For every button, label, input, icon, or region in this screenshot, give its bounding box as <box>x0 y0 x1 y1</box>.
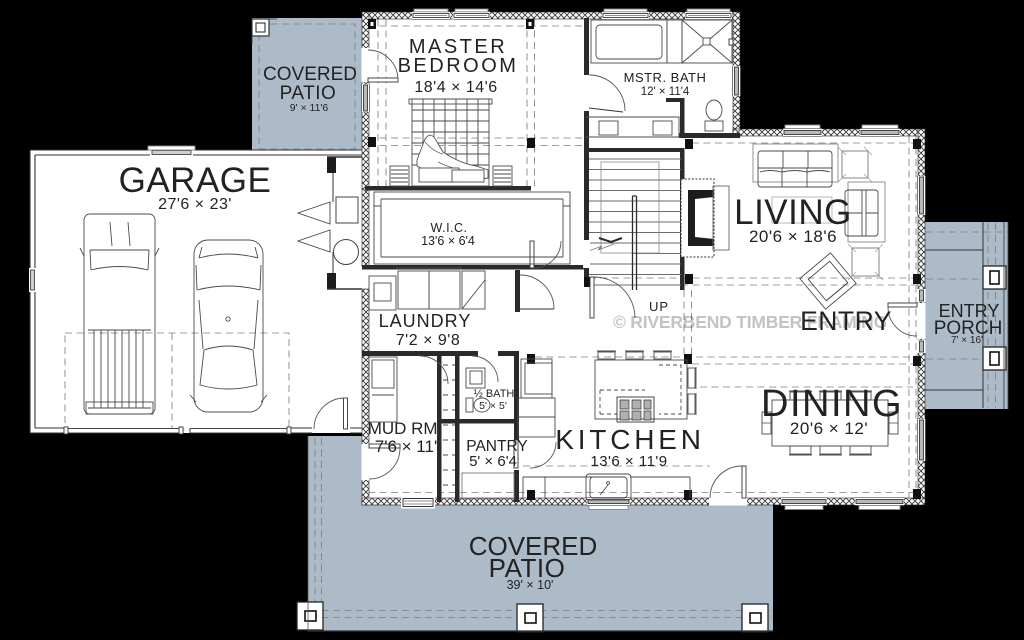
svg-text:13'6 × 11'9: 13'6 × 11'9 <box>590 453 667 470</box>
svg-text:13'6 × 6'4: 13'6 × 6'4 <box>421 234 475 248</box>
svg-text:MUD RM.: MUD RM. <box>368 419 443 438</box>
svg-text:7'6 × 11': 7'6 × 11' <box>375 437 437 456</box>
svg-text:39' × 10': 39' × 10' <box>507 578 554 592</box>
svg-text:7'2 × 9'8: 7'2 × 9'8 <box>396 332 460 349</box>
svg-text:20'6 × 12': 20'6 × 12' <box>790 419 868 438</box>
svg-text:20'6 × 18'6: 20'6 × 18'6 <box>749 227 837 246</box>
svg-text:27'6 × 23': 27'6 × 23' <box>158 196 232 213</box>
svg-text:KITCHEN: KITCHEN <box>555 424 705 455</box>
svg-text:PATIO: PATIO <box>280 83 337 104</box>
svg-text:W.I.C.: W.I.C. <box>430 221 467 235</box>
svg-text:9' × 11'6: 9' × 11'6 <box>290 102 329 114</box>
svg-text:GARAGE: GARAGE <box>119 161 272 200</box>
svg-text:12' × 11'4: 12' × 11'4 <box>641 86 690 98</box>
svg-text:5' × 6'4: 5' × 6'4 <box>469 453 517 470</box>
svg-text:COVERED: COVERED <box>263 64 357 85</box>
svg-text:½ BATH: ½ BATH <box>474 388 515 400</box>
svg-text:LAUNDRY: LAUNDRY <box>379 311 472 331</box>
svg-text:7' × 16': 7' × 16' <box>951 335 983 346</box>
svg-text:© RIVERBEND TIMBER FRAMING: © RIVERBEND TIMBER FRAMING <box>613 312 887 332</box>
svg-text:BEDROOM: BEDROOM <box>398 55 519 77</box>
svg-text:MSTR. BATH: MSTR. BATH <box>624 70 707 85</box>
svg-text:18'4 × 14'6: 18'4 × 14'6 <box>414 79 497 96</box>
svg-text:5' × 5': 5' × 5' <box>479 400 507 412</box>
